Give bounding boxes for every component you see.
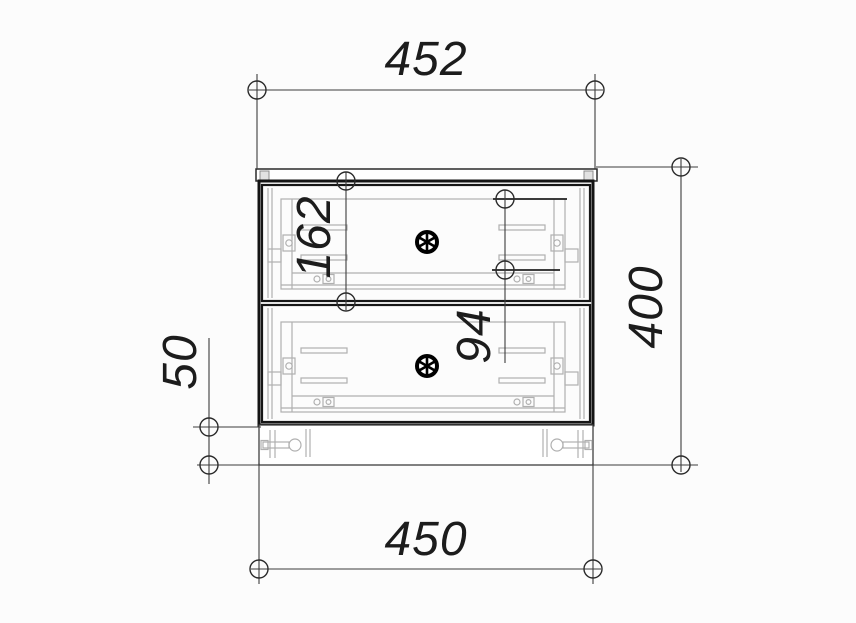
drawer-1-knob-icon [417,232,437,252]
dim-label-handle-spacing: 94 [448,308,501,363]
dim-label-bottom-width: 450 [384,513,467,566]
dim-label-drawer-section-height: 162 [288,195,341,278]
dim-label-overall-height: 400 [620,265,673,348]
dim-label-plinth-height: 50 [154,334,207,389]
plinth [259,425,593,465]
cabinet-top-panel [256,169,597,181]
dimension-plinth-height: 50 [154,334,261,484]
dim-label-top-width: 452 [384,33,467,86]
technical-drawing-page: 452 450 400 50 [0,0,856,623]
dimension-drawer-section-height: 162 [288,172,355,311]
dimensions: 452 450 400 50 [154,33,698,584]
drawer-2-knob-icon [417,356,437,376]
dimension-bottom-width: 450 [250,463,602,584]
cabinet-front-view-drawing: 452 450 400 50 [0,0,856,623]
top-panel-left-fitting [260,171,269,180]
dimension-handle-spacing: 94 [448,190,567,364]
dimension-top-width: 452 [248,33,604,169]
drawer-2 [262,305,590,422]
top-panel-right-fitting [584,171,593,180]
